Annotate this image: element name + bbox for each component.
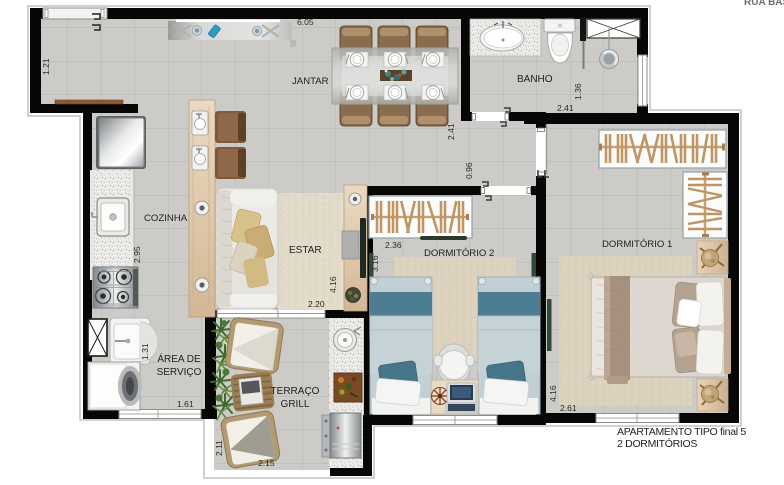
svg-text:2.41: 2.41 xyxy=(446,123,456,140)
svg-text:2 DORMITÓRIOS: 2 DORMITÓRIOS xyxy=(617,437,697,450)
svg-text:SERVIÇO: SERVIÇO xyxy=(157,367,202,378)
svg-text:6.05: 6.05 xyxy=(297,17,314,27)
svg-text:RUA BAST: RUA BAST xyxy=(744,0,784,8)
svg-text:2.15: 2.15 xyxy=(258,458,275,468)
svg-text:GRILL: GRILL xyxy=(281,399,310,410)
svg-text:1.61: 1.61 xyxy=(177,399,194,409)
svg-text:4.16: 4.16 xyxy=(328,276,338,293)
svg-text:JANTAR: JANTAR xyxy=(292,76,329,87)
svg-text:ESTAR: ESTAR xyxy=(289,245,322,256)
svg-text:DORMITÓRIO 1: DORMITÓRIO 1 xyxy=(602,239,672,250)
svg-text:DORMITÓRIO 2: DORMITÓRIO 2 xyxy=(424,248,494,259)
svg-text:2.95: 2.95 xyxy=(132,246,142,263)
svg-text:TERRAÇO: TERRAÇO xyxy=(271,386,320,397)
svg-text:2.61: 2.61 xyxy=(560,403,577,413)
svg-text:2.11: 2.11 xyxy=(214,440,224,456)
svg-text:2.20: 2.20 xyxy=(308,299,325,309)
svg-text:1.21: 1.21 xyxy=(41,58,51,75)
svg-text:APARTAMENTO TIPO final 5: APARTAMENTO TIPO final 5 xyxy=(617,426,746,438)
svg-text:0.96: 0.96 xyxy=(464,162,474,179)
svg-text:1.31: 1.31 xyxy=(140,343,150,360)
svg-text:COZINHA: COZINHA xyxy=(144,213,188,224)
svg-text:ÁREA DE: ÁREA DE xyxy=(157,352,201,365)
svg-text:2.41: 2.41 xyxy=(557,103,574,113)
svg-text:3.16: 3.16 xyxy=(370,255,380,272)
svg-text:4.16: 4.16 xyxy=(548,385,558,402)
svg-text:1.36: 1.36 xyxy=(573,83,583,100)
svg-text:BANHO: BANHO xyxy=(517,74,553,85)
svg-text:2.36: 2.36 xyxy=(385,240,402,250)
